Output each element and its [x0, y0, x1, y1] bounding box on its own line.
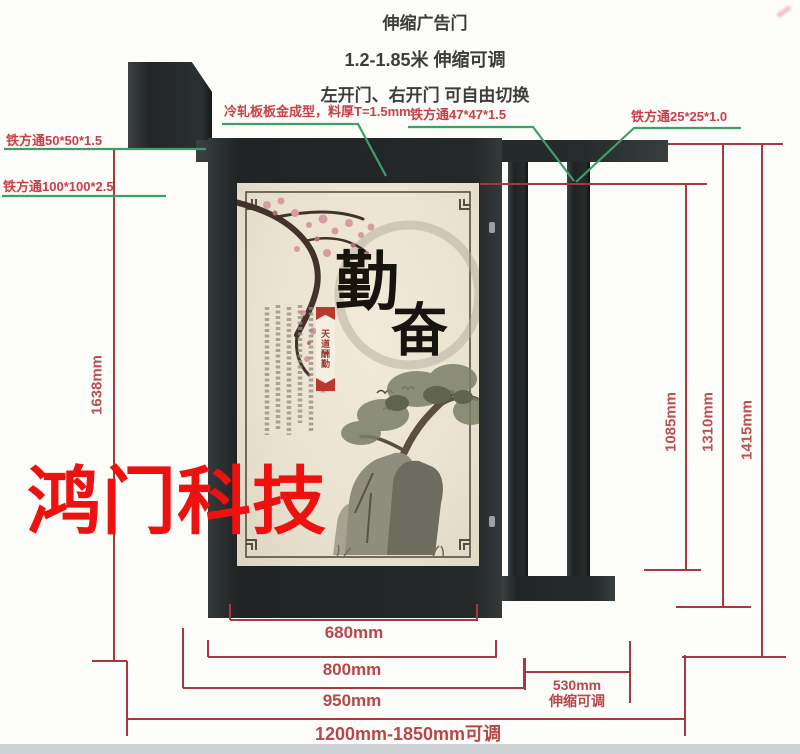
- dim-label-1638: 1638mm: [89, 355, 106, 415]
- dim-label-530-value: 530mm: [549, 677, 605, 693]
- callout-tube-100: 铁方通100*100*2.5: [3, 176, 114, 195]
- product-title: 伸缩广告门: [250, 9, 600, 34]
- callout-tube-25: 铁方通25*25*1.0: [631, 106, 727, 125]
- size-range-note: 1.2-1.85米 伸缩可调: [250, 46, 600, 72]
- callout-tube-50: 铁方通50*50*1.5: [6, 130, 102, 149]
- watermark: 鸿门科技: [27, 456, 327, 549]
- leader-line-coldrolled: [222, 124, 386, 176]
- dim-label-530-note: 伸缩可调: [549, 693, 605, 709]
- product-diagram: 伸缩广告门 1.2-1.85米 伸缩可调 左开门、右开门 可自由切换: [0, 0, 800, 754]
- leader-line-tube25: [576, 128, 741, 182]
- dim-label-1415: 1415mm: [739, 400, 756, 460]
- callout-cold-rolled: 冷轧板板金成型，料厚T=1.5mm: [224, 101, 411, 120]
- dim-label-680: 680mm: [325, 623, 384, 643]
- dim-label-800: 800mm: [323, 660, 382, 680]
- dim-label-1310: 1310mm: [700, 392, 717, 452]
- dim-label-1085: 1085mm: [663, 392, 680, 452]
- dim-label-total-width: 1200mm-1850mm可调: [315, 720, 501, 746]
- dim-label-530: 530mm 伸缩可调: [549, 677, 605, 709]
- leader-line-tube47: [408, 127, 574, 181]
- dim-label-950: 950mm: [323, 691, 382, 711]
- callout-tube-47: 铁方通47*47*1.5: [410, 104, 506, 123]
- title-block: 伸缩广告门 1.2-1.85米 伸缩可调 左开门、右开门 可自由切换: [250, 9, 600, 106]
